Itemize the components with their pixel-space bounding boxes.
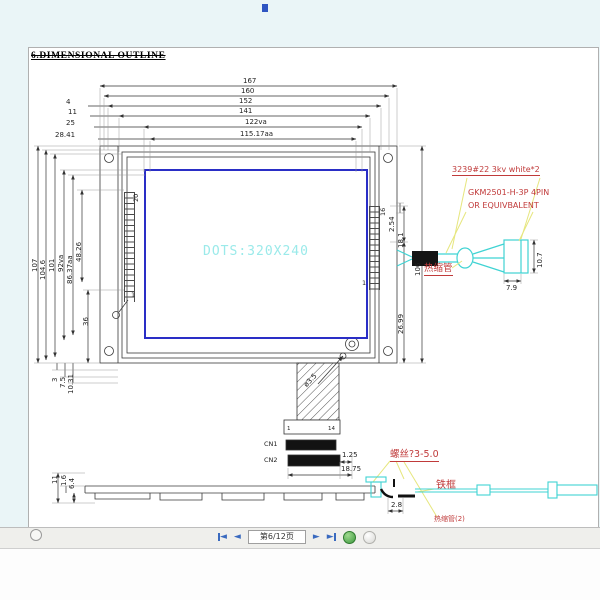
pin-first-label: 1 — [287, 427, 291, 433]
dim-141: 141 — [239, 108, 252, 115]
pin-last-label: 14 — [328, 427, 335, 433]
next-page-button[interactable]: ► — [313, 533, 320, 542]
dim-115aa: 115.17aa — [240, 131, 273, 138]
last-page-button[interactable]: ► — [327, 533, 336, 542]
dim-106: 106 — [415, 263, 422, 276]
pin-1-right-label: 1 — [362, 280, 366, 287]
side-view-dimensions — [58, 473, 403, 511]
page-navigation: ◄ ◄ 第6/12页 ► ► — [218, 527, 376, 547]
leader-lines — [373, 178, 540, 517]
dim-181: 18.1 — [398, 232, 405, 248]
drawing-title: 6.DIMENSIONAL OUTLINE — [31, 51, 166, 61]
zoom-out-button[interactable] — [343, 531, 356, 544]
screw-annotation: 螺丝?3-5.0 — [390, 450, 439, 462]
heat-shrink-annotation: 热缩管 — [424, 264, 453, 276]
right-pin-strip — [369, 206, 380, 290]
dim-offset-11: 11 — [68, 109, 77, 116]
dim-s64: 6.4 — [69, 478, 76, 489]
side-view-witness-lines — [52, 473, 403, 514]
cn2-label: CN2 — [264, 457, 278, 464]
dim-101: 101 — [49, 259, 56, 272]
dim-offset-2841: 28.41 — [55, 132, 75, 139]
dim-8637aa: 86.37aa — [67, 255, 74, 284]
dim-254: 2.54 — [389, 216, 396, 232]
dim-1875: 18.75 — [341, 466, 361, 473]
dim-107b: 10.7 — [537, 252, 544, 268]
dim-offset-25: 25 — [66, 120, 75, 127]
dim-36: 36 — [83, 317, 90, 326]
left-pin-strip — [124, 192, 135, 302]
dim-125: 1.25 — [342, 452, 358, 459]
dim-79: 7.9 — [506, 285, 517, 292]
pin-16-label: 16 — [380, 208, 387, 216]
dim-1046: 104.6 — [40, 260, 47, 280]
page-indicator[interactable]: 第6/12页 — [248, 530, 306, 544]
first-page-button[interactable]: ◄ — [218, 533, 227, 542]
dim-28: 2.8 — [391, 502, 402, 509]
previous-page-button[interactable]: ◄ — [234, 533, 241, 542]
dim-1031: 10.31 — [68, 374, 75, 394]
wire-spec-annotation: 3239#22 3kv white*2 — [452, 166, 540, 176]
heat-shrink-annotation-2: 热缩管(2) — [434, 516, 465, 523]
side-view — [85, 486, 375, 500]
dim-152: 152 — [239, 98, 252, 105]
pin-1-left-label: 1 — [131, 292, 135, 299]
status-circle-icon — [30, 529, 42, 541]
zoom-in-button[interactable] — [363, 531, 376, 544]
display-dots-label: DOTS:320X240 — [145, 244, 367, 259]
dim-3: 3 — [52, 378, 59, 382]
drawing-linework — [0, 0, 600, 600]
pin-20-label: 20 — [133, 194, 140, 202]
dim-75: 7.5 — [60, 377, 67, 388]
artifact-mark — [262, 4, 268, 12]
connector-model-annotation-2: OR EQUIVBALENT — [468, 202, 539, 210]
dim-92va: 92va — [58, 255, 65, 272]
dim-offset-4: 4 — [66, 99, 70, 106]
connector-model-annotation: GKM2501-H-3P 4PIN — [468, 189, 549, 197]
dim-122va: 122va — [245, 119, 267, 126]
dim-4826: 48.26 — [76, 242, 83, 262]
dim-107: 107 — [32, 259, 39, 272]
dim-160: 160 — [241, 88, 254, 95]
dim-s16: 1.6 — [61, 475, 68, 486]
iron-frame-annotation: 铁框 — [436, 481, 456, 491]
cn1-label: CN1 — [264, 441, 278, 448]
dim-s11: 11 — [52, 475, 59, 484]
dim-167: 167 — [243, 78, 256, 85]
dim-2699: 26.99 — [398, 314, 405, 334]
